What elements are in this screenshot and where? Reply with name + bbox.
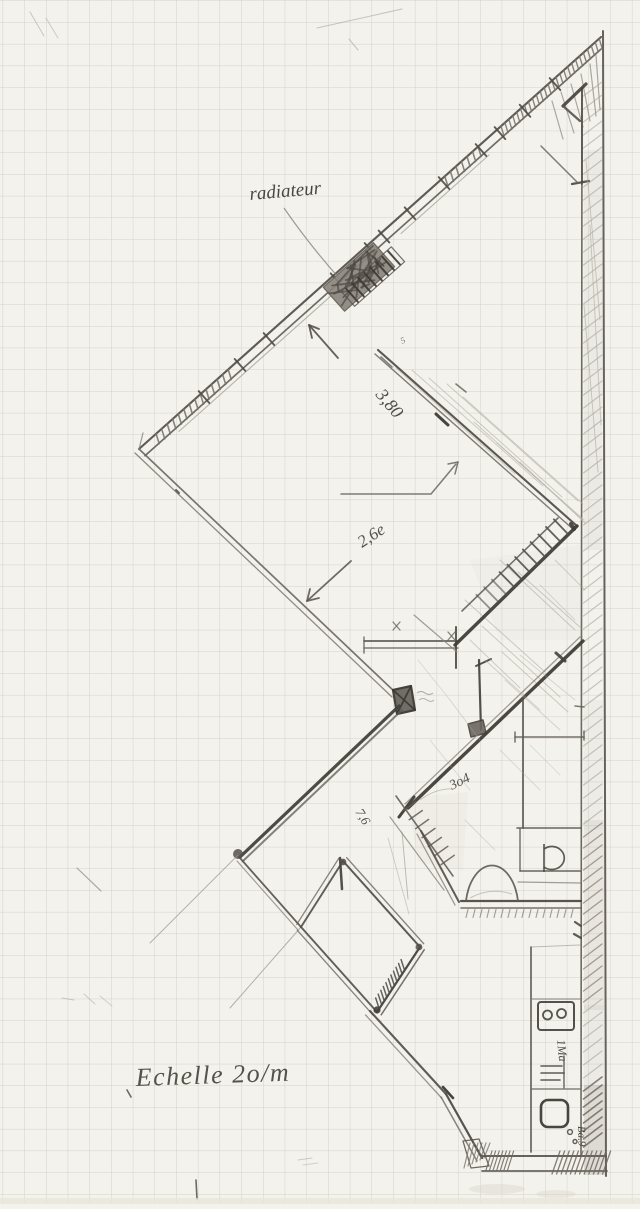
svg-text:Echelle 2o/m: Echelle 2o/m [134,1058,290,1092]
svg-text:1Ma: 1Ma [554,1039,570,1062]
